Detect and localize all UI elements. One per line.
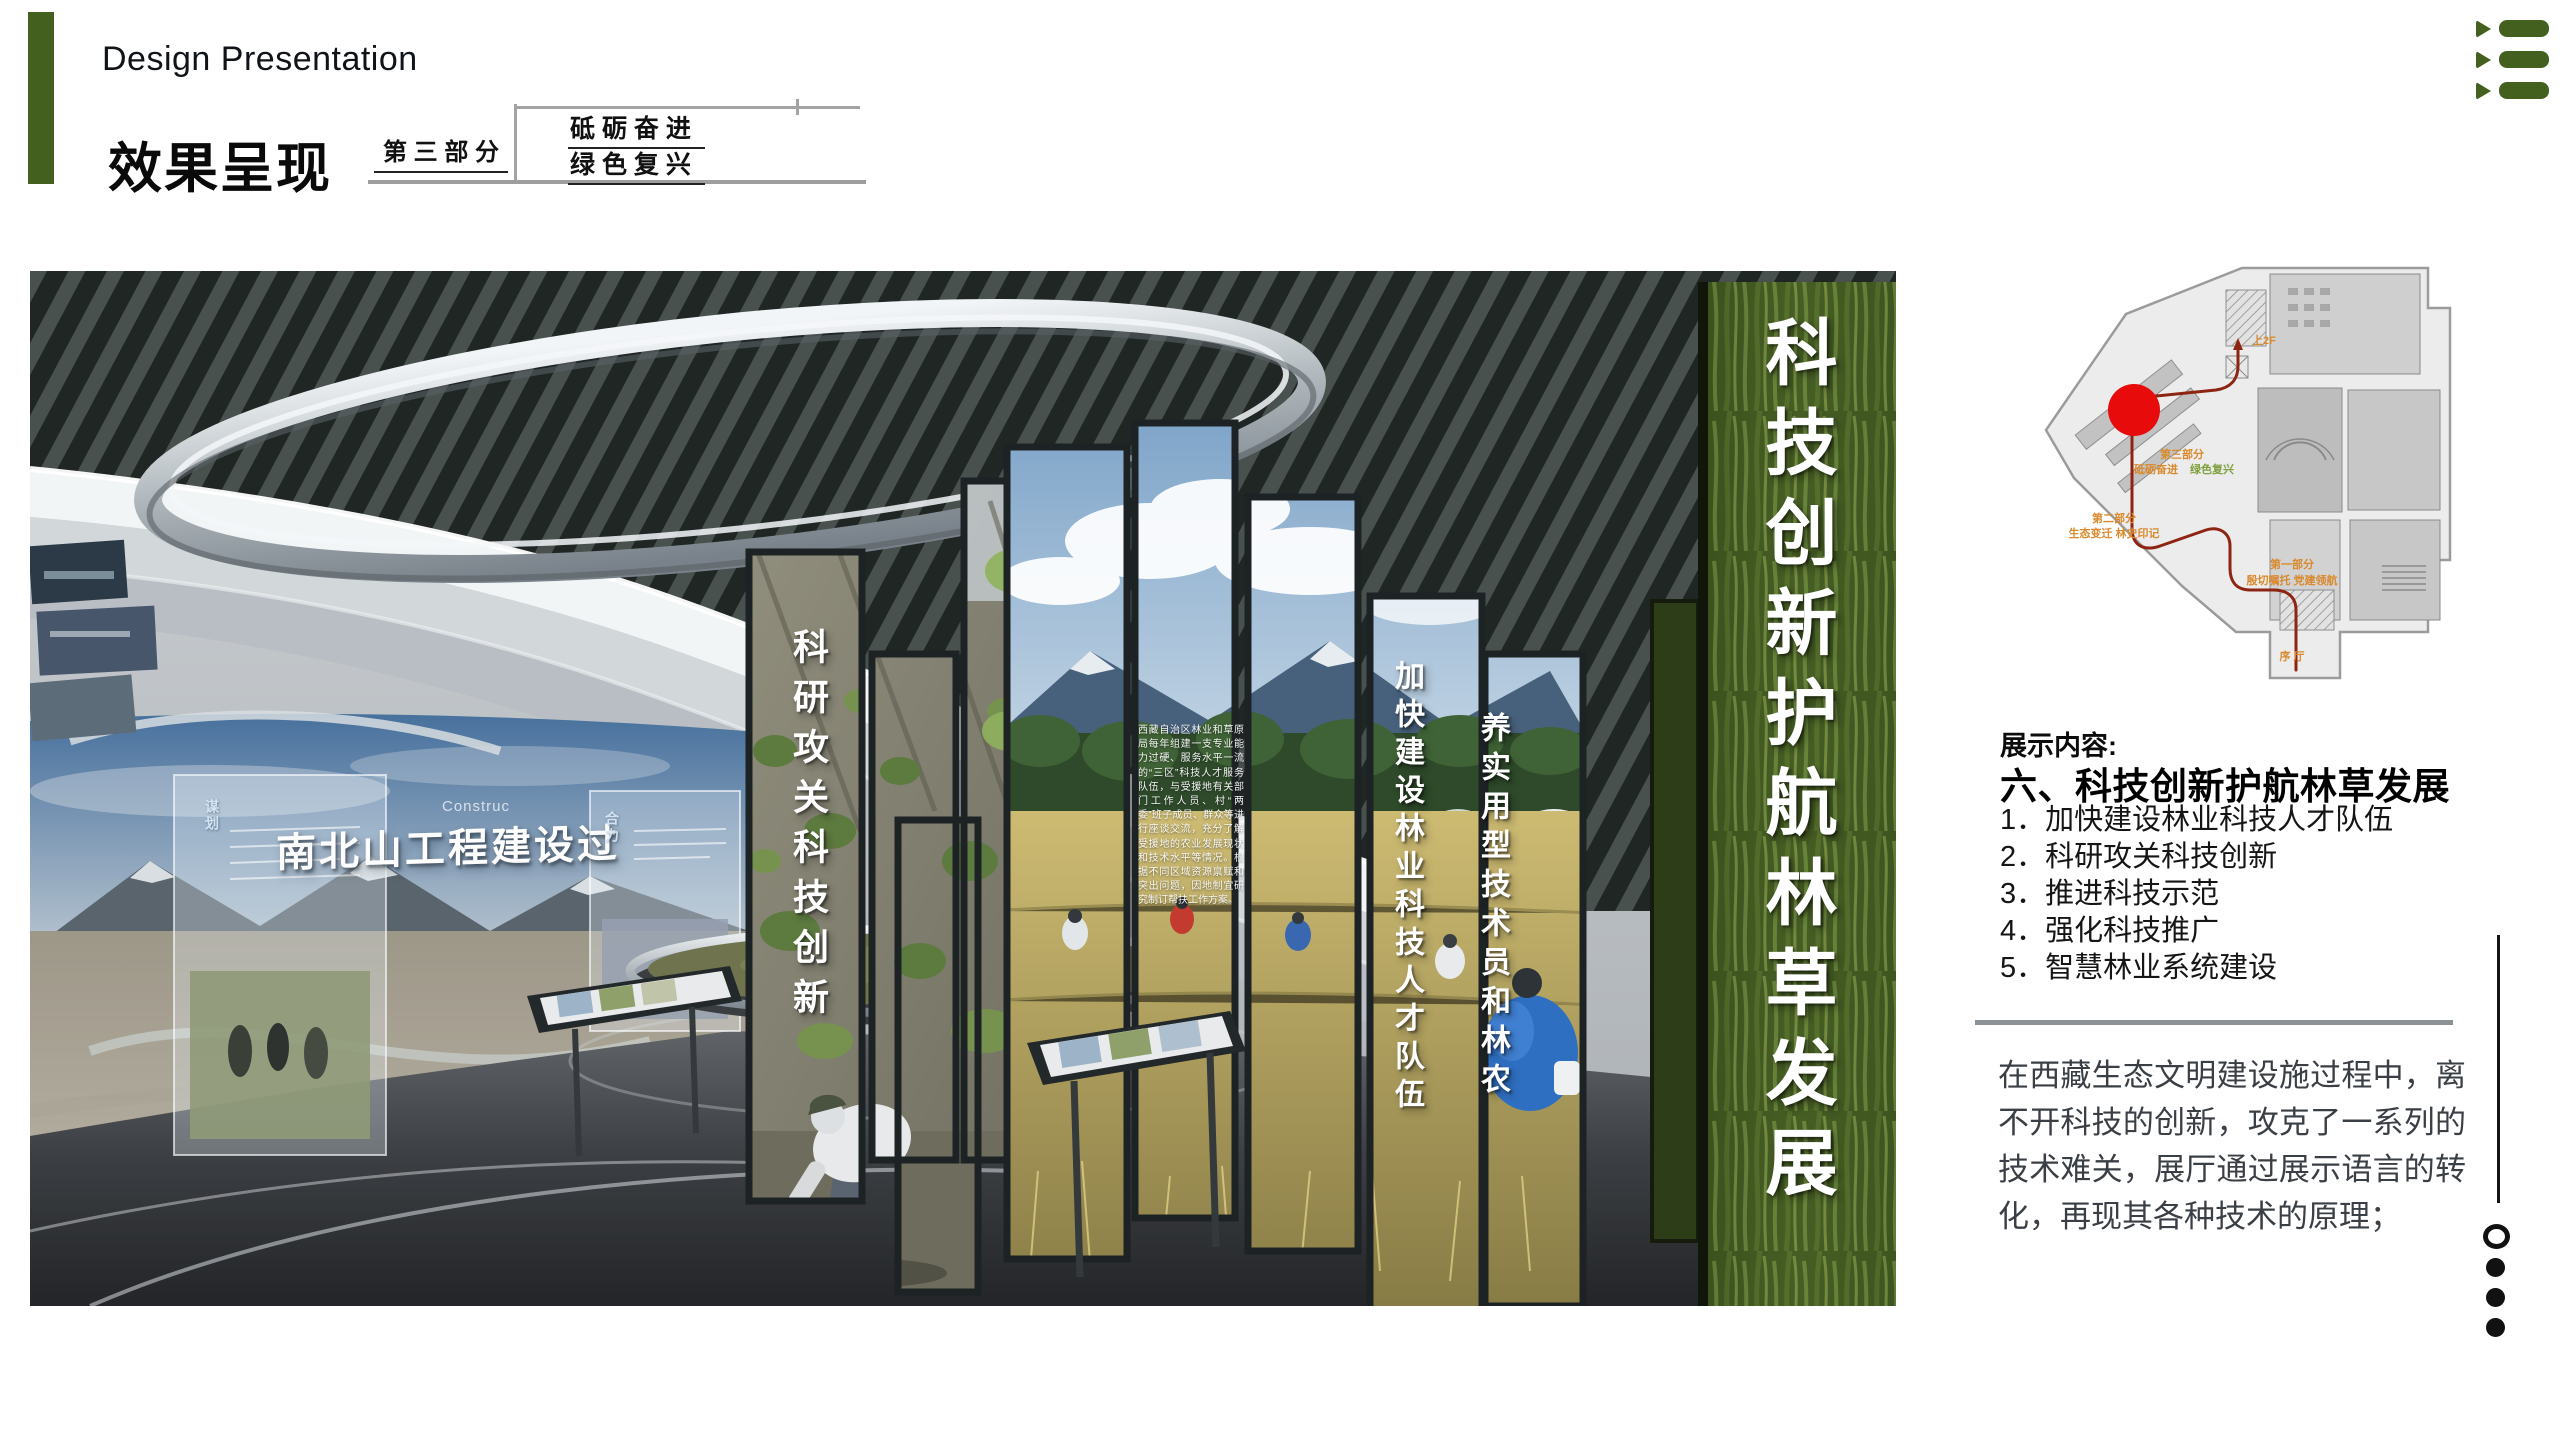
list-icon-row bbox=[2476, 82, 2550, 99]
current-location-marker bbox=[2108, 384, 2160, 436]
pillar-text-research: 科研攻关科技创新 bbox=[782, 628, 834, 1028]
plan-label-part3-theme-a: 砥砺奋进 bbox=[2134, 462, 2178, 476]
part-theme-line1: 砥 砺 奋 进 bbox=[568, 109, 705, 149]
content-item: 2．科研攻关科技创新 bbox=[2000, 839, 2480, 876]
glass-panel-label: 谋划 bbox=[202, 799, 222, 833]
plan-label-part2: 第二部分 bbox=[2092, 511, 2136, 525]
pager-dot[interactable] bbox=[2486, 1318, 2505, 1337]
pager-dot[interactable] bbox=[2486, 1288, 2505, 1307]
pager-dot-active[interactable] bbox=[2483, 1224, 2510, 1249]
pager-vertical-line bbox=[2497, 935, 2500, 1203]
part-block-tick bbox=[796, 99, 799, 115]
pager-dot[interactable] bbox=[2486, 1258, 2505, 1277]
description-paragraph: 在西藏生态文明建设施过程中，离不开科技的创新，攻克了一系列的技术难关，展厅通过展… bbox=[1998, 1052, 2466, 1240]
screen-title-text: 南北山工程建设过 bbox=[276, 811, 620, 879]
plan-label-part1-theme: 殷切嘱托 党建领航 bbox=[2246, 573, 2337, 587]
panel-paragraph-text: 西藏自治区林业和草原局每年组建一支专业能力过硬、服务水平一流的“三区”科技人才服… bbox=[1138, 724, 1244, 908]
section-divider bbox=[1975, 1020, 2453, 1025]
page-subtitle-en: Design Presentation bbox=[102, 40, 418, 79]
triangle-bullet-icon bbox=[2476, 82, 2491, 100]
part-theme-line2: 绿 色 复 兴 bbox=[568, 145, 705, 185]
plan-label-up2f: 上2F bbox=[2252, 333, 2276, 347]
plan-label-part3: 第三部分 bbox=[2160, 447, 2204, 461]
plan-label-lobby: 序 厅 bbox=[2279, 649, 2304, 663]
content-item-list: 1．加快建设林业科技人才队伍 2．科研攻关科技创新 3．推进科技示范 4．强化科… bbox=[2000, 802, 2480, 987]
list-icon-row bbox=[2476, 51, 2550, 68]
part-number-label: 第 三 部 分 bbox=[374, 132, 508, 173]
list-icon-row bbox=[2476, 20, 2550, 37]
content-item: 1．加快建设林业科技人才队伍 bbox=[2000, 802, 2480, 839]
part-block-divider bbox=[514, 104, 517, 182]
pillar-text-team: 加快建设林业科技人才队伍 bbox=[1384, 660, 1428, 1116]
plan-label-part2-theme: 生态变迁 林史印记 bbox=[2068, 526, 2159, 540]
list-icon[interactable] bbox=[2476, 20, 2550, 112]
page-title: 效果呈现 bbox=[108, 124, 332, 203]
content-item: 4．强化科技推广 bbox=[2000, 913, 2480, 950]
screen-subtitle-text: Construc bbox=[442, 798, 510, 815]
render-illustration bbox=[30, 271, 1896, 1306]
part-title-block: 第 三 部 分 砥 砺 奋 进 绿 色 复 兴 bbox=[368, 106, 860, 182]
content-item: 3．推进科技示范 bbox=[2000, 876, 2480, 913]
pillar-text-practical: 养实用型技术员和林农 bbox=[1470, 712, 1514, 1102]
triangle-bullet-icon bbox=[2476, 20, 2491, 38]
exhibition-render-image: 南北山工程建设过 Construc 谋划 合力 科研攻关科技创新 加快建设林业科… bbox=[30, 271, 1896, 1306]
plan-label-part3-theme-b: 绿色复兴 bbox=[2190, 462, 2234, 476]
triangle-bullet-icon bbox=[2476, 51, 2491, 69]
glass-panel-label: 合力 bbox=[602, 811, 622, 845]
floor-plan: 上2F 第三部分 砥砺奋进 绿色复兴 第二部分 生态变迁 林史印记 第一部分 殷… bbox=[2030, 260, 2460, 692]
header-accent-bar bbox=[28, 12, 54, 184]
list-bar bbox=[2499, 82, 2549, 99]
plan-label-part1: 第一部分 bbox=[2270, 557, 2314, 571]
content-item: 5．智慧林业系统建设 bbox=[2000, 950, 2480, 987]
list-bar bbox=[2499, 20, 2549, 37]
pillar-text-main: 科技创新护航林草发展 bbox=[1742, 315, 1847, 1215]
list-bar bbox=[2499, 51, 2549, 68]
slide-canvas: Design Presentation 效果呈现 第 三 部 分 砥 砺 奋 进… bbox=[0, 0, 2560, 1440]
